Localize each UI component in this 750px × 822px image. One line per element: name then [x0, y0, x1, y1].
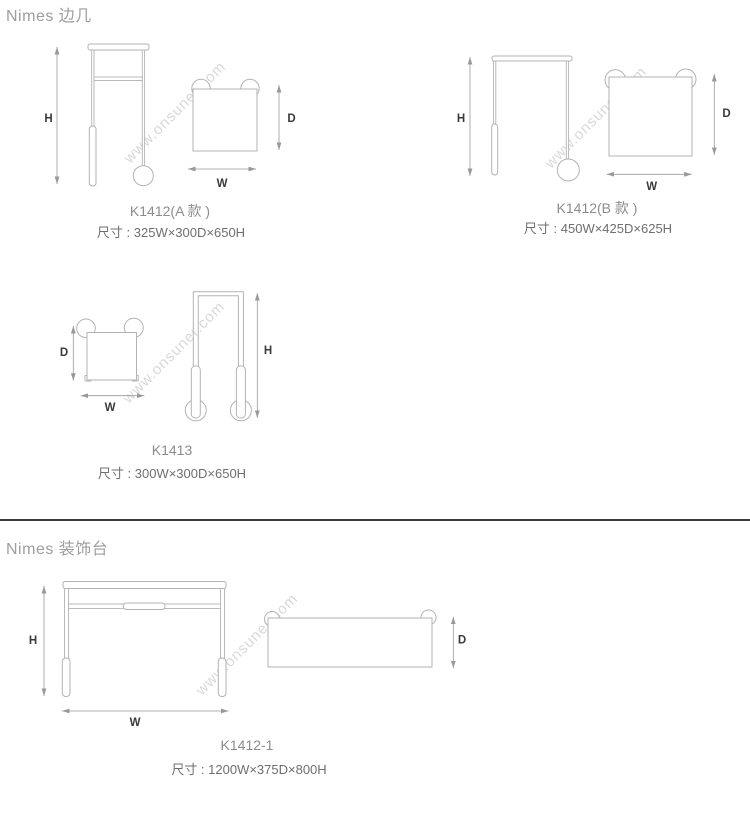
width-dim-label: W	[130, 717, 141, 729]
leg-sleeve	[89, 126, 96, 186]
model-label-k1412a: K1412(A 款 )	[70, 201, 270, 221]
size-label-k1412-1: 尺寸 : 1200W×375D×800H	[149, 759, 349, 778]
k1412a-top-view	[192, 79, 259, 151]
leg-sleeve	[62, 658, 70, 697]
tabletop-plan	[87, 333, 137, 381]
k1412a-height-dimension: H	[44, 47, 57, 184]
width-dim-label: W	[105, 402, 116, 414]
k1412-1-depth-dimension: D	[453, 617, 466, 669]
k1412-1-width-dimension: W	[62, 711, 229, 729]
leg-sleeve	[191, 366, 200, 418]
height-dim-label: H	[29, 635, 37, 647]
cross-rail	[94, 77, 142, 81]
height-dim-label: H	[264, 345, 272, 357]
depth-dim-label: D	[458, 635, 466, 647]
tabletop	[492, 56, 572, 61]
k1412-1-height-dimension: H	[29, 586, 44, 696]
right-leg	[142, 50, 144, 166]
tabletop-plan	[268, 618, 432, 667]
k1413-front-view	[185, 292, 251, 421]
k1412-1-drawing: H W D	[25, 578, 470, 730]
section-divider	[0, 519, 750, 521]
k1412b-drawing: H D W	[450, 38, 740, 195]
leg-sleeve	[236, 366, 245, 418]
k1412b-top-view	[605, 69, 696, 156]
tabletop	[88, 44, 149, 50]
depth-dim-label: D	[722, 108, 730, 120]
k1413-depth-dimension: D	[60, 326, 73, 381]
k1412a-depth-dimension: D	[279, 85, 296, 150]
size-label-k1412a: 尺寸 : 325W×300D×650H	[71, 222, 271, 241]
size-label-k1413: 尺寸 : 300W×300D×650H	[72, 463, 272, 482]
k1412b-width-dimension: W	[607, 174, 692, 193]
k1413-height-dimension: H	[257, 293, 272, 418]
k1412b-depth-dimension: D	[714, 74, 730, 155]
right-leg	[221, 589, 225, 659]
k1412b-front-view	[492, 56, 580, 181]
frame-inner	[198, 296, 238, 366]
frame-outer	[193, 292, 243, 366]
catalog-page: Nimes 边几 www.onsuner.com www.onsuner.com…	[0, 0, 750, 822]
tabletop	[63, 582, 226, 589]
depth-dim-label: D	[287, 113, 295, 125]
section-heading-console: Nimes 装饰台	[6, 535, 108, 559]
width-dim-label: W	[646, 181, 657, 193]
model-label-k1413: K1413	[72, 442, 272, 458]
leg-sleeve	[492, 124, 498, 175]
k1412-1-front-view	[62, 582, 226, 697]
stretcher-center-block	[123, 603, 165, 610]
leg-sleeve	[218, 658, 226, 697]
width-dim-label: W	[217, 178, 228, 190]
left-leg	[92, 50, 94, 127]
k1412-1-top-view	[265, 610, 437, 667]
section-heading-side-tables: Nimes 边几	[6, 2, 92, 26]
ball-foot	[557, 159, 579, 181]
k1412a-drawing: H D W	[40, 38, 300, 195]
size-label-k1412b: 尺寸 : 450W×425D×625H	[498, 218, 698, 237]
depth-dim-label: D	[60, 347, 68, 359]
left-leg	[65, 589, 69, 659]
k1413-width-dimension: W	[81, 396, 145, 414]
k1413-top-view	[77, 318, 144, 381]
right-leg	[566, 61, 568, 159]
height-dim-label: H	[457, 113, 465, 125]
k1412b-height-dimension: H	[457, 57, 470, 176]
k1413-drawing: D W H	[55, 280, 285, 425]
k1412a-front-view	[88, 44, 153, 186]
k1412a-width-dimension: W	[188, 169, 256, 190]
tabletop-plan	[609, 77, 692, 156]
left-leg	[494, 61, 496, 124]
model-label-k1412-1: K1412-1	[147, 737, 347, 753]
ball-foot	[133, 166, 153, 186]
height-dim-label: H	[44, 113, 52, 125]
model-label-k1412b: K1412(B 款 )	[497, 198, 697, 218]
tabletop-plan	[193, 89, 257, 151]
